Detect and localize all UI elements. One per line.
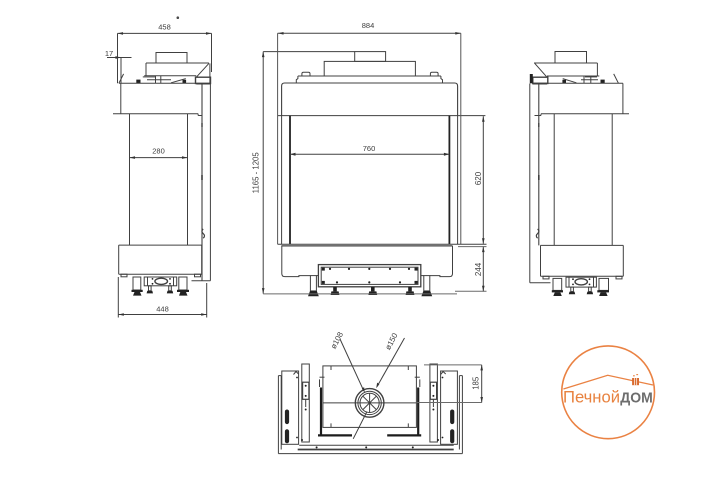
svg-text:448: 448 [156, 304, 169, 313]
svg-text:ДОМ: ДОМ [620, 390, 653, 407]
svg-text:884: 884 [362, 21, 375, 30]
svg-text:244: 244 [474, 262, 483, 276]
svg-text:ø108: ø108 [329, 331, 345, 351]
svg-text:Печной: Печной [563, 389, 620, 407]
svg-text:458: 458 [158, 22, 171, 31]
svg-text:280: 280 [152, 147, 165, 156]
svg-text:620: 620 [474, 171, 483, 185]
svg-text:1165 - 1205: 1165 - 1205 [251, 152, 260, 194]
svg-text:185: 185 [472, 376, 481, 390]
svg-text:760: 760 [363, 144, 376, 153]
svg-text:17: 17 [105, 49, 113, 58]
svg-text:ø150: ø150 [383, 331, 400, 352]
